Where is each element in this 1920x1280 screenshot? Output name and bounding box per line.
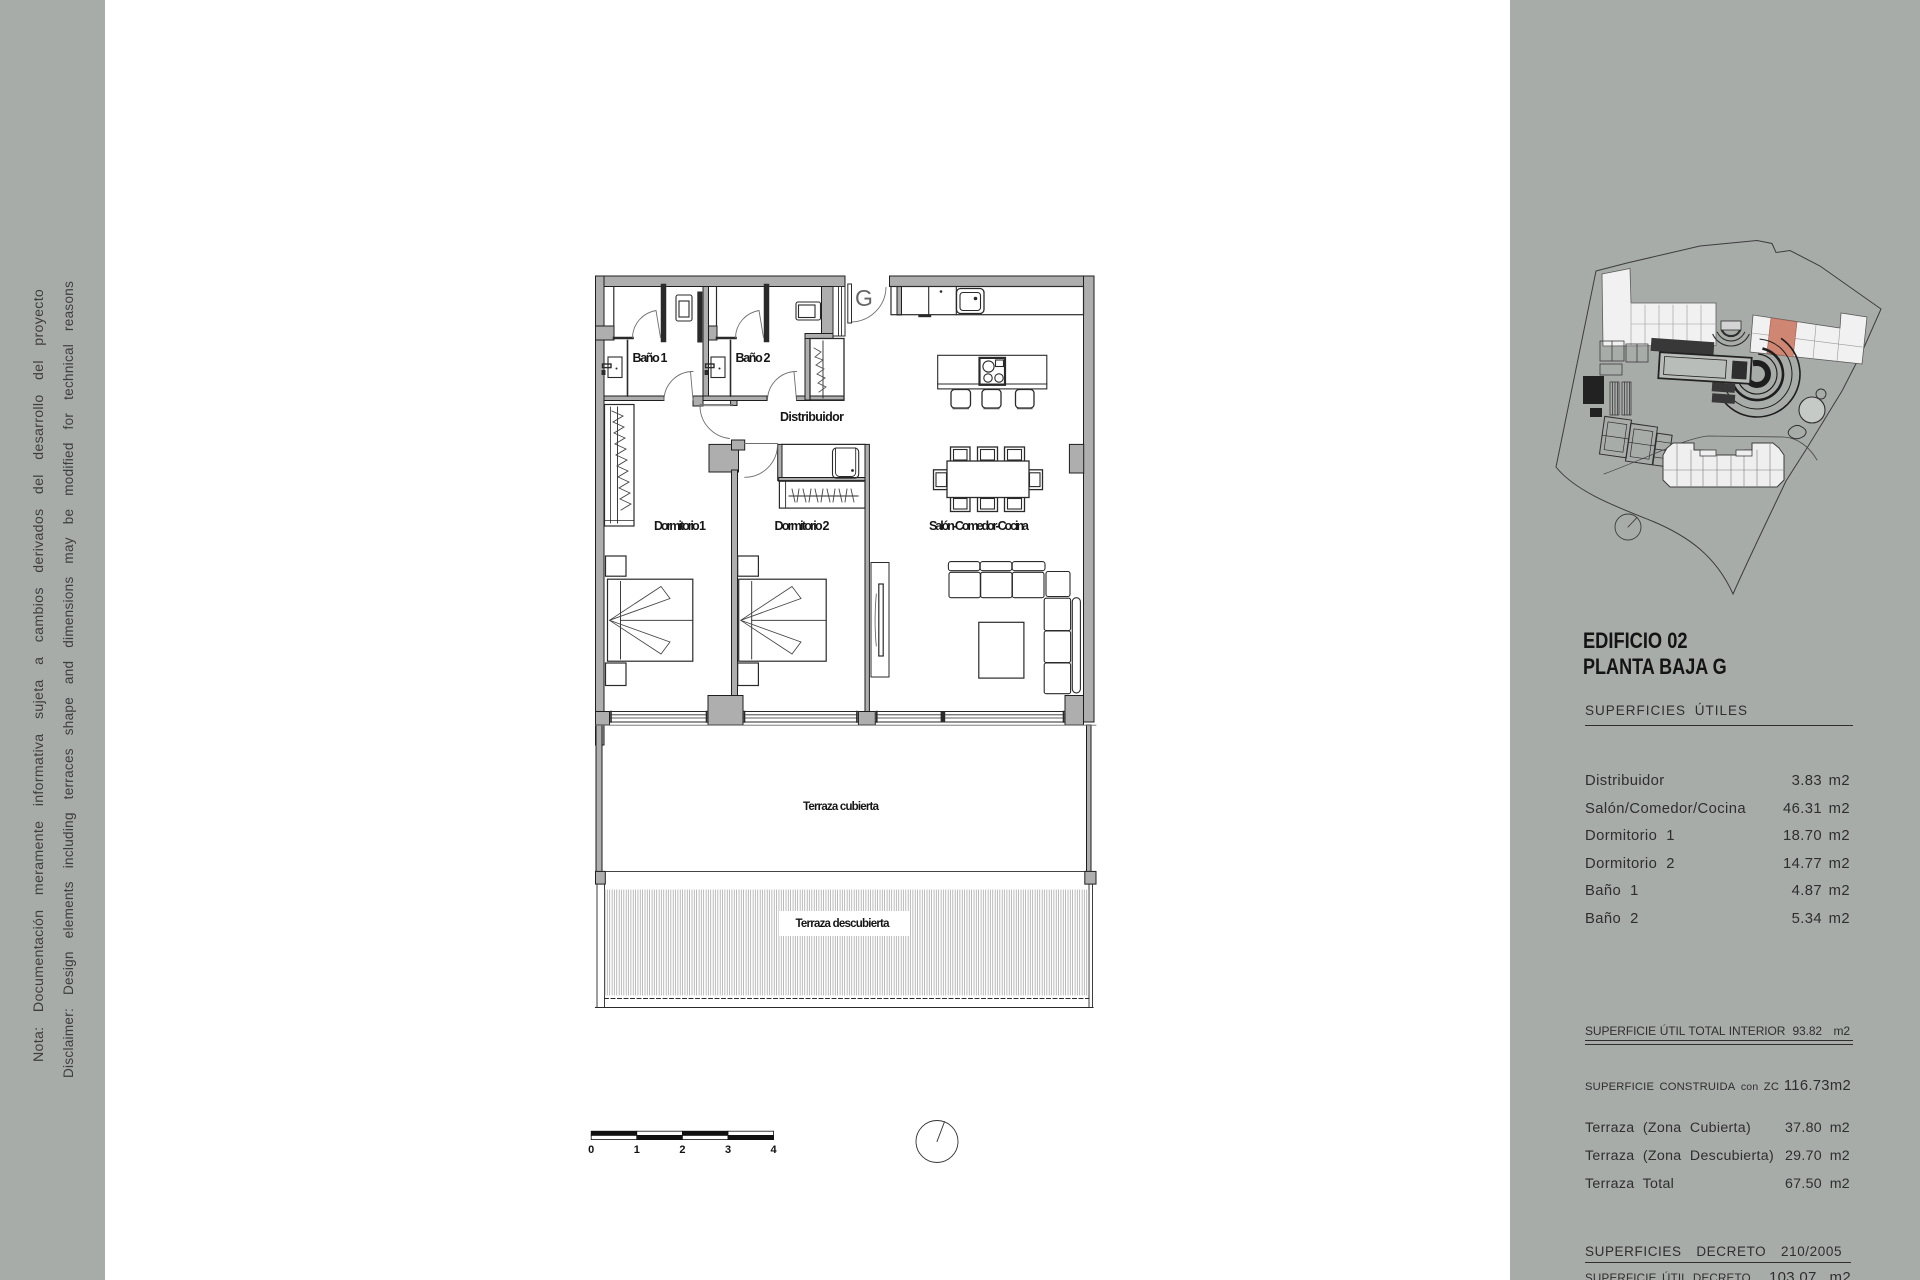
svg-text:Baño 2: Baño 2 xyxy=(736,351,771,365)
svg-text:0: 0 xyxy=(588,1144,594,1156)
svg-text:Baño 1: Baño 1 xyxy=(633,351,668,365)
svg-text:Terraza cubierta: Terraza cubierta xyxy=(803,801,880,813)
svg-text:G: G xyxy=(855,285,873,311)
svg-text:Dormitorio 1: Dormitorio 1 xyxy=(654,519,706,533)
svg-text:Distribuidor: Distribuidor xyxy=(780,410,844,424)
svg-text:Terraza descubierta: Terraza descubierta xyxy=(796,918,891,930)
svg-text:Dormitorio 2: Dormitorio 2 xyxy=(775,519,830,533)
svg-text:3: 3 xyxy=(725,1144,731,1156)
svg-text:2: 2 xyxy=(679,1144,685,1156)
svg-text:1: 1 xyxy=(634,1144,640,1156)
svg-text:Salón-Comedor-Cocina: Salón-Comedor-Cocina xyxy=(929,519,1030,533)
svg-text:4: 4 xyxy=(771,1144,778,1156)
